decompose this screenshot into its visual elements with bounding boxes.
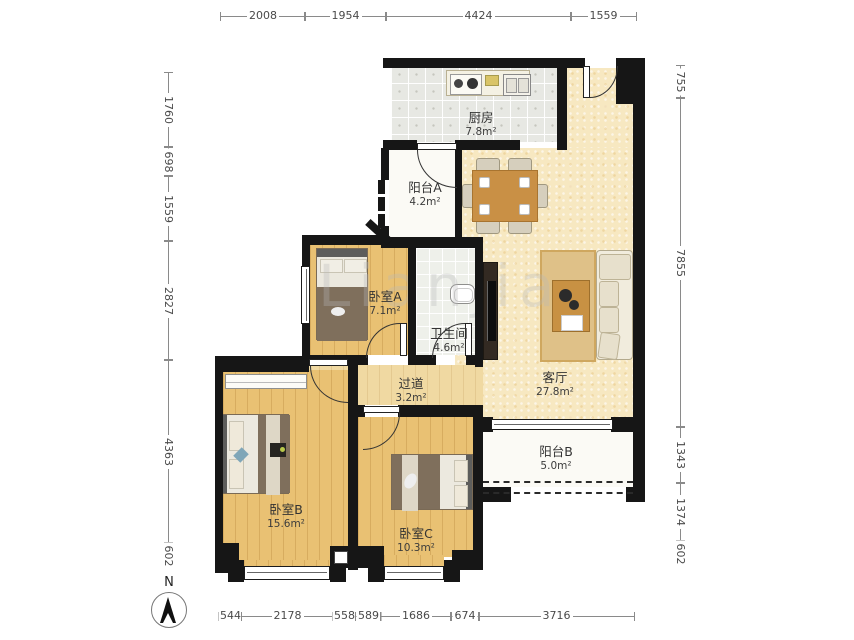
plate <box>479 177 490 188</box>
room-name: 厨房 <box>445 111 517 125</box>
dimension-value: 2008 <box>247 10 279 22</box>
room-area: 7.8m² <box>445 126 517 138</box>
dining-set <box>462 156 546 234</box>
room-name: 过道 <box>375 377 447 391</box>
stove <box>450 74 482 95</box>
dimension-value: 1954 <box>330 10 362 22</box>
dimension-segment: 1343 <box>676 426 685 484</box>
room-name: 阳台B <box>520 445 592 459</box>
dimension-segment: 1559 <box>164 175 173 242</box>
room-area: 15.6m² <box>250 518 322 530</box>
dimension-value: 4424 <box>463 10 495 22</box>
dimension-segment: 602 <box>676 540 685 567</box>
north-label: N <box>145 575 193 590</box>
dimension-value: 1760 <box>162 93 175 127</box>
room-area: 3.2m² <box>375 392 447 404</box>
balcony-open-edge <box>483 481 633 483</box>
door-leaf-bedroom-a <box>400 323 407 356</box>
wall <box>368 560 384 582</box>
wall <box>381 237 483 248</box>
dimension-segment: 2178 <box>241 612 334 621</box>
floor-plan: Lianjia <box>0 0 854 640</box>
room-name: 卧室A <box>349 290 421 304</box>
balcony-railing <box>378 180 385 228</box>
wall <box>626 487 645 502</box>
plate <box>519 204 530 215</box>
sink <box>503 74 531 96</box>
window <box>301 266 310 324</box>
door-leaf-balcony-a <box>417 143 457 150</box>
room-area: 4.6m² <box>413 342 485 354</box>
dimension-value: 544 <box>218 610 243 622</box>
door-leaf-bedroom-c <box>363 406 400 413</box>
room-label-bedroom-a: 卧室A 7.1m² <box>349 290 421 317</box>
dimension-segment: 674 <box>450 612 480 621</box>
dimension-value: 602 <box>674 540 687 567</box>
kitchen-item <box>485 75 499 86</box>
room-name: 卧室C <box>380 527 452 541</box>
dimension-value: 3716 <box>541 610 573 622</box>
wall <box>383 58 585 68</box>
plate <box>479 204 490 215</box>
wall <box>633 430 645 492</box>
room-label-hallway: 过道 3.2m² <box>375 377 447 404</box>
sofa-cushion <box>597 332 620 361</box>
wall <box>466 355 483 365</box>
room-label-living-room: 客厅 27.8m² <box>519 371 591 398</box>
dimension-value: 2827 <box>162 284 175 318</box>
room-area: 27.8m² <box>519 386 591 398</box>
wall <box>452 550 483 570</box>
dimension-value: 602 <box>162 542 175 569</box>
dimension-value: 1374 <box>674 495 687 529</box>
dimension-value: 2178 <box>272 610 304 622</box>
dimension-value: 589 <box>356 610 381 622</box>
door-leaf-bedroom-b <box>309 359 348 366</box>
wall <box>348 356 358 570</box>
dimension-segment: 7855 <box>676 97 685 428</box>
dimension-value: 674 <box>453 610 478 622</box>
dimension-segment: 4363 <box>164 359 173 544</box>
dimension-value: 1343 <box>674 438 687 472</box>
pillow <box>454 485 468 507</box>
dimension-segment: 1760 <box>164 72 173 148</box>
wall <box>611 417 635 432</box>
balcony-open-edge <box>483 492 633 494</box>
dimension-segment: 1686 <box>380 612 452 621</box>
dimension-value: 1559 <box>588 10 620 22</box>
dining-table <box>472 170 538 222</box>
room-name: 卫生间 <box>413 327 485 341</box>
pillow <box>229 459 244 489</box>
room-label-bedroom-c: 卧室C 10.3m² <box>380 527 452 554</box>
kettle <box>569 300 579 310</box>
blanket <box>258 415 290 493</box>
dimension-value: 698 <box>162 148 175 175</box>
room-name: 卧室B <box>250 503 322 517</box>
wall <box>228 560 244 582</box>
sofa-cushion <box>599 254 631 280</box>
dimension-segment: 755 <box>676 65 685 99</box>
room-label-balcony-b: 阳台B 5.0m² <box>520 445 592 472</box>
room-area: 5.0m² <box>520 460 592 472</box>
dimension-value: 7855 <box>674 246 687 280</box>
wall <box>473 487 511 502</box>
window-bay <box>384 566 444 580</box>
room-area: 10.3m² <box>380 542 452 554</box>
dimension-value: 4363 <box>162 435 175 469</box>
wall <box>215 356 223 572</box>
room-area: 7.1m² <box>349 305 421 317</box>
dimension-segment: 2008 <box>220 12 306 21</box>
bed-decor <box>280 447 285 452</box>
room-label-bathroom: 卫生间 4.6m² <box>413 327 485 354</box>
sofa <box>596 250 633 360</box>
plate <box>519 177 530 188</box>
dimension-value: 1686 <box>400 610 432 622</box>
wall <box>398 405 483 417</box>
dimension-segment: 3716 <box>478 612 635 621</box>
wall <box>557 58 567 150</box>
blanket <box>392 455 440 509</box>
sofa-cushion <box>599 281 619 307</box>
wall <box>633 58 645 432</box>
dimension-segment: 1374 <box>676 482 685 542</box>
wall <box>215 356 309 372</box>
wall <box>455 140 520 150</box>
room-name: 阳台A <box>389 181 461 195</box>
dimension-segment: 589 <box>355 612 382 621</box>
kitchen-counter <box>446 70 530 96</box>
room-label-balcony-a: 阳台A 4.2m² <box>389 181 461 208</box>
sink-basin <box>506 78 517 93</box>
dimension-segment: 544 <box>218 612 243 621</box>
dimension-segment: 4424 <box>385 12 572 21</box>
bed <box>391 454 473 510</box>
room-name: 客厅 <box>519 371 591 385</box>
dimension-segment: 698 <box>164 146 173 177</box>
dimension-segment: 558 <box>332 612 357 621</box>
dimension-segment: 1559 <box>570 12 637 21</box>
window-bay <box>244 566 330 580</box>
dimension-segment: 2827 <box>164 240 173 361</box>
dimension-value: 558 <box>332 610 357 622</box>
window-small <box>334 551 348 564</box>
wall <box>302 235 384 245</box>
tray <box>561 315 583 331</box>
wall <box>381 148 389 180</box>
bed-tray <box>270 443 286 457</box>
dimension-value: 1559 <box>162 192 175 226</box>
room-area: 4.2m² <box>389 196 461 208</box>
window-sliding <box>491 419 613 430</box>
bed <box>219 414 289 494</box>
sink-basin <box>518 78 529 93</box>
sofa-cushion <box>599 307 619 333</box>
door-leaf-entrance <box>583 66 590 98</box>
pillow <box>454 460 468 482</box>
dimension-segment: 602 <box>164 542 173 569</box>
burner <box>467 78 478 89</box>
wardrobe-line <box>226 382 306 383</box>
room-label-bedroom-b: 卧室B 15.6m² <box>250 503 322 530</box>
room-label-kitchen: 厨房 7.8m² <box>445 111 517 138</box>
dimension-value: 755 <box>674 69 687 96</box>
north-arrow-notch <box>163 613 173 623</box>
burner <box>454 79 463 88</box>
wardrobe <box>225 374 307 389</box>
dimension-segment: 1954 <box>304 12 387 21</box>
